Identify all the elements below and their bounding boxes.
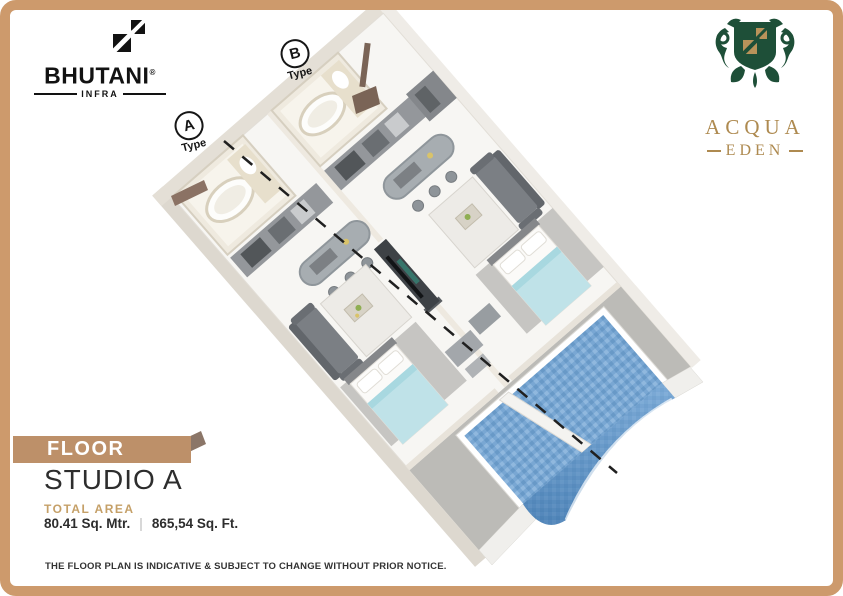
floor-plan-banner: FLOOR PLAN: [13, 436, 191, 463]
page-title: STUDIO A: [44, 464, 183, 496]
total-area-label: TOTAL AREA: [44, 502, 135, 516]
area-values: 80.41 Sq. Mtr. | 865,54 Sq. Ft.: [44, 516, 238, 531]
area-metric: 80.41 Sq. Mtr.: [44, 516, 130, 531]
disclaimer-text: THE FLOOR PLAN IS INDICATIVE & SUBJECT T…: [45, 561, 447, 572]
area-separator: |: [139, 516, 143, 531]
area-imperial: 865,54 Sq. Ft.: [152, 516, 238, 531]
building-slab: [152, 0, 706, 567]
